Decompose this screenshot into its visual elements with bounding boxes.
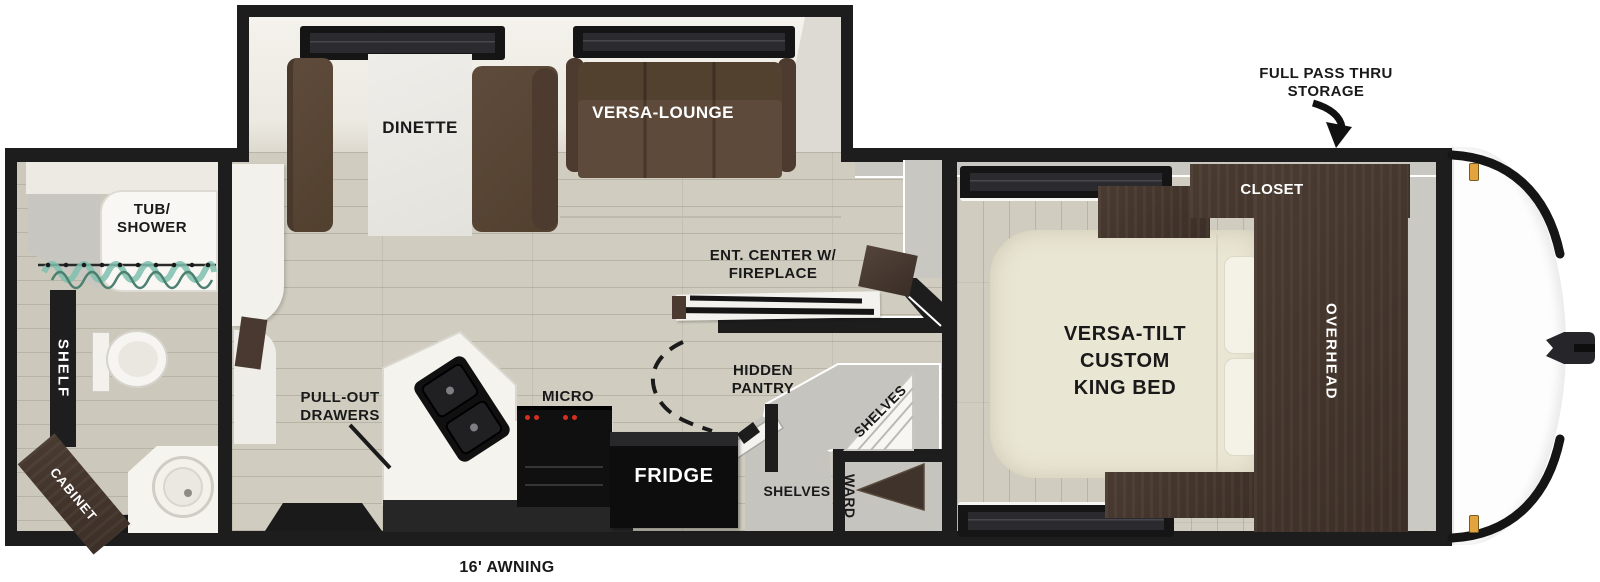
closet-label: CLOSET bbox=[1222, 182, 1322, 197]
bed-label-line2: CUSTOM bbox=[1010, 351, 1240, 371]
hidden-pantry-label-line1: HIDDEN bbox=[683, 363, 843, 378]
bed-label-line3: KING BED bbox=[1010, 378, 1240, 398]
dinette-label: DINETTE bbox=[365, 119, 475, 136]
hidden-pantry-label-line2: PANTRY bbox=[683, 381, 843, 396]
ent-center-label-line2: FIREPLACE bbox=[673, 266, 873, 281]
ent-center-label-line1: ENT. CENTER W/ bbox=[673, 248, 873, 263]
bed-label-line1: VERSA-TILT bbox=[1010, 324, 1240, 344]
fridge-label: FRIDGE bbox=[614, 466, 734, 486]
micro-label: MICRO bbox=[518, 389, 618, 404]
wardrobe-label: WARD bbox=[840, 460, 860, 532]
overhead-label: OVERHEAD bbox=[1320, 294, 1342, 410]
tub-shower-label-line2: SHOWER bbox=[92, 220, 212, 235]
versa-lounge-label: VERSA-LOUNGE bbox=[563, 104, 763, 121]
alcove-shelves-label: SHELVES bbox=[737, 484, 857, 498]
floorplan-canvas: CABINET bbox=[0, 0, 1600, 582]
pullout-label-line2: DRAWERS bbox=[290, 408, 390, 423]
storage-callout-arrowhead bbox=[1326, 122, 1352, 148]
storage-callout-line1: FULL PASS THRU bbox=[1226, 66, 1426, 81]
pullout-label-line1: PULL-OUT bbox=[290, 390, 390, 405]
bath-shelf-label: SHELF bbox=[50, 290, 76, 447]
storage-callout-line2: STORAGE bbox=[1226, 84, 1426, 99]
awning-label: 16' AWNING bbox=[427, 560, 587, 576]
tub-shower-label-line1: TUB/ bbox=[92, 202, 212, 217]
